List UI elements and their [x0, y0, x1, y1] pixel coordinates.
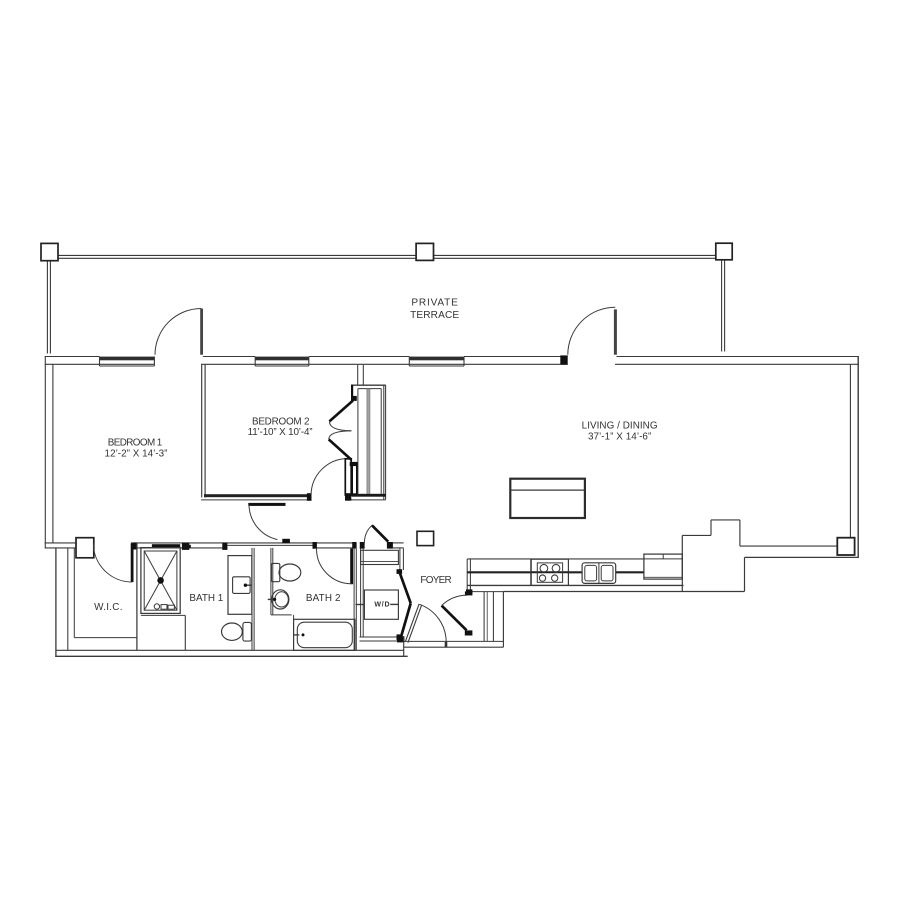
svg-text:FOYER: FOYER [420, 575, 451, 586]
svg-text:BATH 1: BATH 1 [189, 593, 223, 604]
svg-text:W/D: W/D [374, 601, 389, 608]
svg-text:12’-2” X 14’-3”: 12’-2” X 14’-3” [105, 449, 168, 460]
svg-text:37’-1” X 14’-6”: 37’-1” X 14’-6” [588, 432, 651, 443]
svg-text:BATH 2: BATH 2 [306, 593, 341, 604]
svg-text:W.I.C.: W.I.C. [94, 602, 122, 613]
svg-text:BEDROOM 1: BEDROOM 1 [108, 437, 163, 448]
svg-text:BEDROOM 2: BEDROOM 2 [252, 416, 310, 427]
svg-text:PRIVATE: PRIVATE [411, 298, 458, 309]
svg-text:TERRACE: TERRACE [410, 310, 459, 321]
svg-text:LIVING / DINING: LIVING / DINING [582, 421, 658, 432]
svg-text:11’-10” X 10’-4”: 11’-10” X 10’-4” [248, 427, 313, 438]
